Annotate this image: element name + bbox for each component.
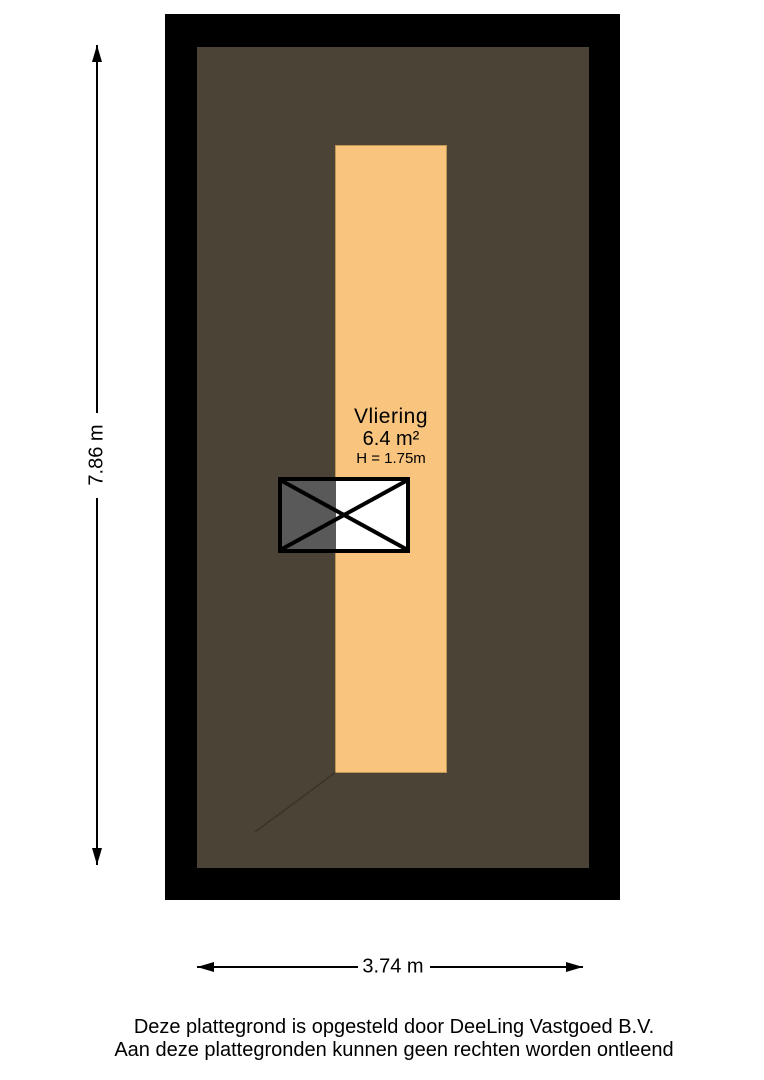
footer-line-1: Deze plattegrond is opgesteld door DeeLi… (24, 1016, 764, 1039)
vertical-dimension-label: 7.86 m (86, 424, 109, 485)
roof-fold-line (250, 765, 345, 840)
room-height-label: H = 1.75m (335, 450, 447, 468)
cross-hatch-icon (282, 481, 406, 549)
vertical-dimension-line-bottom (96, 498, 98, 865)
room-name-label: Vliering (335, 405, 447, 429)
arrow-left-icon (197, 962, 214, 972)
horizontal-dimension-label: 3.74 m (362, 956, 423, 979)
arrow-up-icon (92, 45, 102, 62)
room-label-group: Vliering 6.4 m² H = 1.75m (335, 405, 447, 468)
vertical-dimension-line-top (96, 45, 98, 413)
horizontal-dimension-line-left (197, 966, 358, 968)
arrow-down-icon (92, 848, 102, 865)
footer-line-2: Aan deze plattegronden kunnen geen recht… (24, 1039, 764, 1062)
footer-disclaimer: Deze plattegrond is opgesteld door DeeLi… (0, 1016, 764, 1062)
stair-opening-hatch (278, 477, 410, 553)
arrow-right-icon (566, 962, 583, 972)
horizontal-dimension-line-right (430, 966, 583, 968)
floorplan-page: Vliering 6.4 m² H = 1.75m 7.86 m 3.74 m … (0, 0, 764, 1080)
room-area-label: 6.4 m² (335, 429, 447, 450)
